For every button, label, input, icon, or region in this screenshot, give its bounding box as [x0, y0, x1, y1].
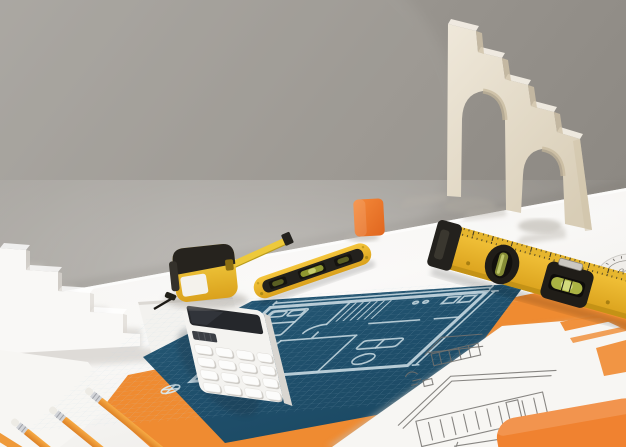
scene-canvas: White staircase model on desk edge Cream… [0, 0, 626, 447]
workspace-photo: White staircase model on desk edge Cream… [0, 0, 626, 447]
